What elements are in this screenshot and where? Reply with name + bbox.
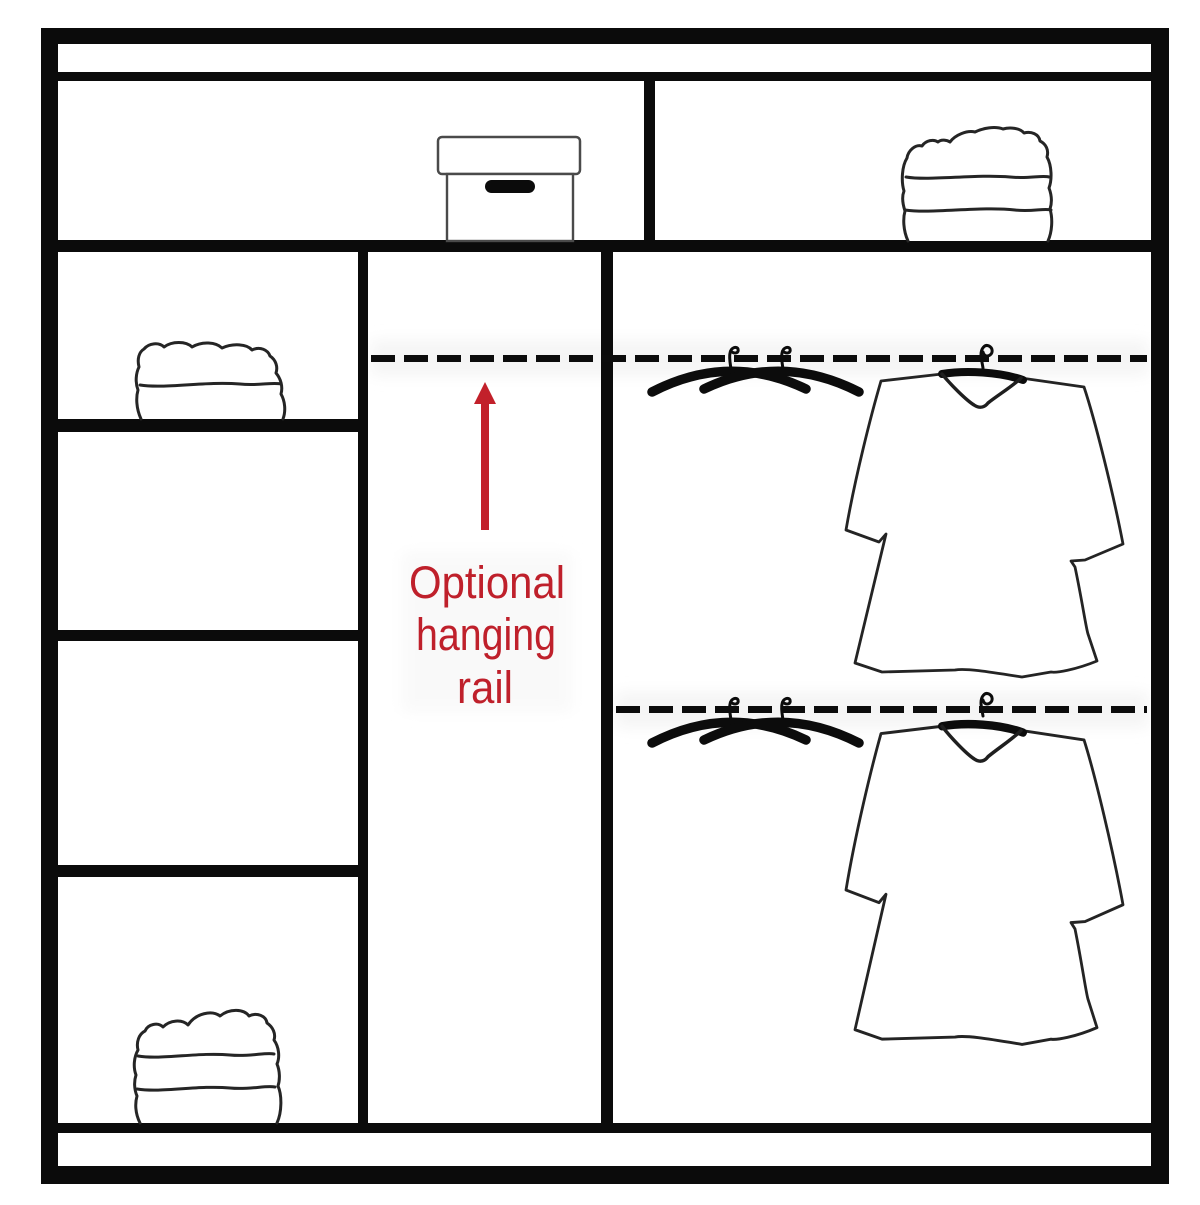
svg-text:hanging: hanging: [416, 609, 556, 660]
svg-text:Optional: Optional: [409, 557, 565, 608]
svg-text:rail: rail: [457, 662, 513, 713]
